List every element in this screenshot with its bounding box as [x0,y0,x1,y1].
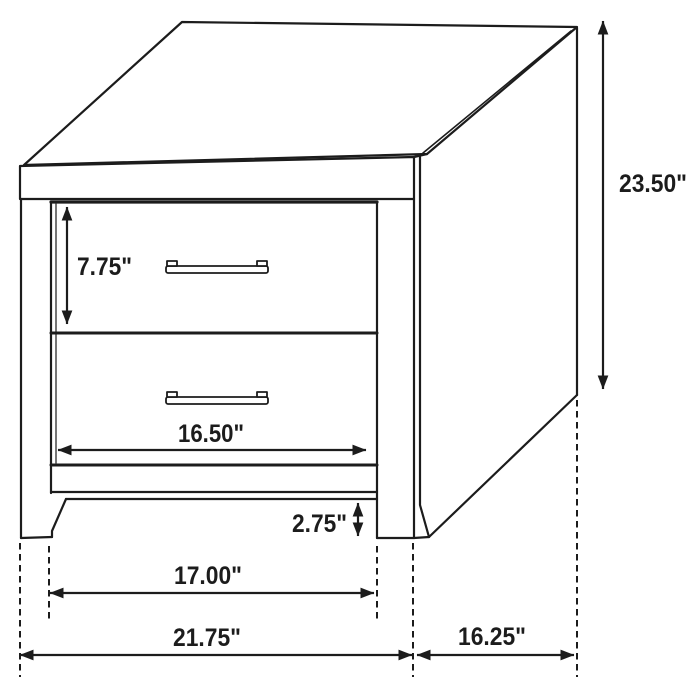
dimension-arrows [20,21,603,655]
dimension-labels: 23.50" 7.75" 16.50" 2.75" 17.00" 21.75" … [77,170,687,652]
drawer-2-handle-left-cap [167,392,177,397]
label-drawer-width: 16.50" [178,420,244,448]
label-overall-width: 21.75" [173,624,241,652]
label-base-clearance: 2.75" [292,510,347,538]
label-overall-height: 23.50" [619,170,687,198]
tabletop-edge-line [423,31,571,153]
diagram-canvas: 23.50" 7.75" 16.50" 2.75" 17.00" 21.75" … [0,0,700,700]
furniture-dimension-diagram: 23.50" 7.75" 16.50" 2.75" 17.00" 21.75" … [0,0,700,700]
right-leg-bottom [377,537,429,538]
drawer-1-handle [166,261,268,273]
side-corner-edge [420,157,429,537]
drawer-1-handle-bar [166,266,268,273]
drawer-1-handle-right-cap [257,261,267,266]
left-leg-bottom [21,537,52,538]
label-overall-depth: 16.25" [458,623,526,651]
drawer-2-handle-bar [166,397,268,404]
drawer-1-handle-left-cap [167,261,177,266]
drawer-2-handle [166,392,268,404]
label-top-drawer-height: 7.75" [77,253,132,281]
drawer-2-handle-right-cap [257,392,267,397]
left-leg-chamfer [52,499,66,537]
side-bottom-edge [429,395,577,537]
label-leg-inner-span: 17.00" [174,562,242,590]
